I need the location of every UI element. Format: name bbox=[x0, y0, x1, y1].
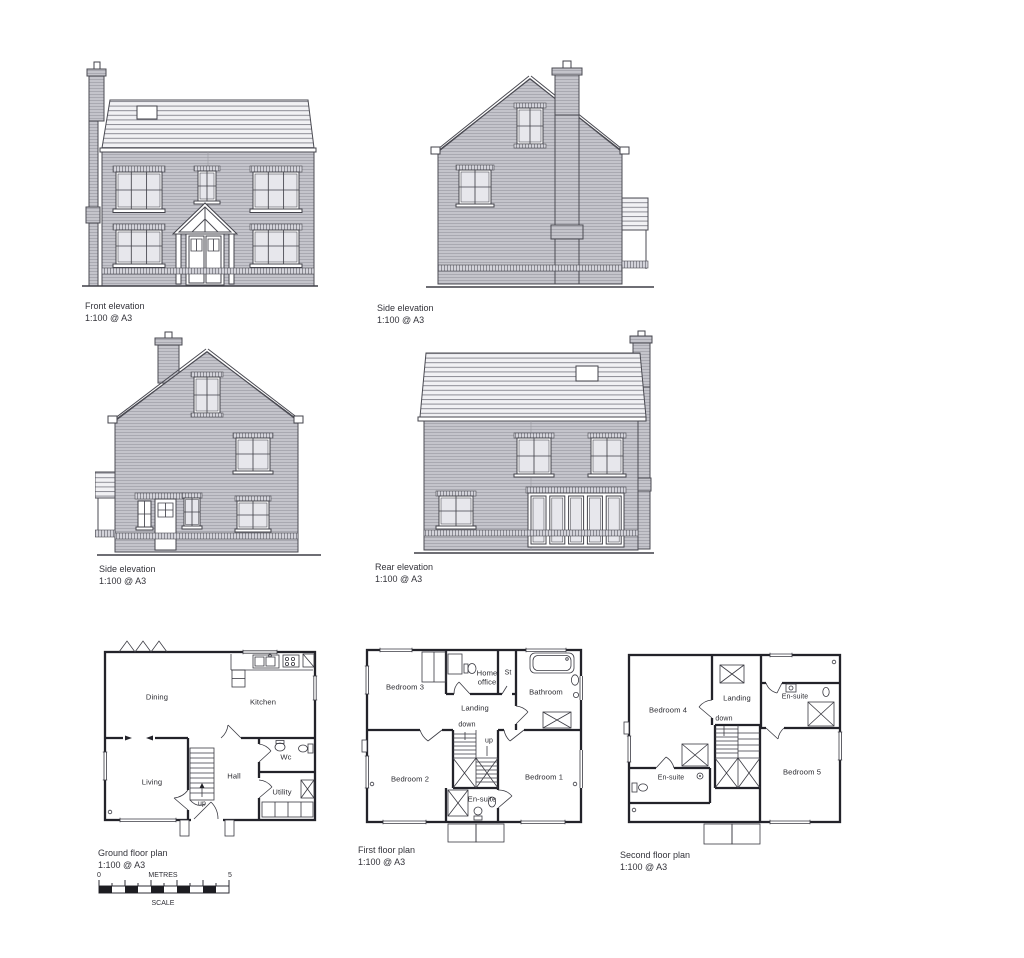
window bbox=[514, 433, 554, 477]
toilet bbox=[639, 784, 648, 791]
rooflight bbox=[576, 366, 598, 381]
basin bbox=[571, 675, 578, 685]
bifold-doors bbox=[526, 487, 626, 547]
ensuite-right-fittings bbox=[786, 684, 834, 726]
room-label-kitchen: Kitchen bbox=[250, 698, 276, 707]
side-elevation-mid-caption: Side elevation 1:100 @ A3 bbox=[99, 563, 156, 587]
plinth-course bbox=[438, 265, 622, 271]
scale-five: 5 bbox=[228, 872, 232, 879]
plinth-course bbox=[102, 268, 314, 274]
wall-projection bbox=[624, 722, 629, 734]
room-label-wc: Wc bbox=[280, 753, 291, 762]
room-label-living: Living bbox=[142, 778, 162, 787]
room-label-landing: Landing bbox=[723, 694, 751, 703]
porch-post bbox=[180, 820, 189, 836]
scale-bar-svg: 0 METRES 5 SCALE bbox=[97, 868, 237, 914]
toilet bbox=[474, 807, 482, 815]
window bbox=[233, 433, 273, 474]
utility-units bbox=[262, 780, 314, 817]
room-label-hall: Hall bbox=[227, 772, 240, 781]
basin bbox=[275, 743, 285, 751]
corner-detail bbox=[370, 782, 374, 786]
ground-floor-plan-drawing: Dining Kitchen Living Hall Wc Utility up bbox=[95, 640, 325, 845]
window bbox=[436, 491, 476, 529]
caption-title: Side elevation bbox=[377, 302, 434, 314]
corner-detail bbox=[573, 782, 577, 786]
corner-detail bbox=[832, 660, 836, 664]
room-label-bathroom: Bathroom bbox=[529, 688, 563, 697]
chimney-icon bbox=[551, 61, 583, 284]
roof bbox=[418, 353, 646, 421]
stair-label-down: down bbox=[715, 716, 732, 723]
window bbox=[182, 493, 202, 529]
hob bbox=[283, 655, 299, 667]
room-label-utility: Utility bbox=[272, 788, 291, 797]
side-elevation-mid-drawing bbox=[95, 330, 325, 565]
stair-label-up: up bbox=[198, 801, 206, 808]
window bbox=[113, 224, 165, 268]
porch-side bbox=[95, 472, 115, 537]
front-elevation-svg bbox=[80, 55, 322, 295]
first-floor-plan-drawing: Bedroom 3 Home office St Bathroom Landin… bbox=[358, 640, 595, 848]
wc-fittings bbox=[275, 741, 313, 754]
front-elevation-drawing bbox=[80, 55, 322, 295]
scale-caption: SCALE bbox=[152, 900, 175, 907]
side-elevation-top-caption: Side elevation 1:100 @ A3 bbox=[377, 302, 434, 326]
window bbox=[235, 496, 271, 532]
scale-bar-graphic bbox=[99, 880, 229, 893]
caption-scale: 1:100 @ A3 bbox=[620, 861, 690, 873]
room-label-store: St bbox=[505, 670, 512, 677]
plinth-course bbox=[115, 533, 298, 539]
drawing-sheet: Front elevation 1:100 @ A3 bbox=[0, 0, 1024, 958]
first-floor-caption: First floor plan 1:100 @ A3 bbox=[358, 844, 415, 868]
porch-post bbox=[225, 820, 234, 836]
internal-walls bbox=[629, 655, 840, 822]
porch-below bbox=[476, 824, 504, 842]
window bbox=[191, 372, 223, 417]
second-floor-plan-svg bbox=[620, 640, 857, 852]
caption-title: Ground floor plan bbox=[98, 847, 168, 859]
room-label-landing: Landing bbox=[461, 704, 489, 713]
void-box bbox=[720, 665, 744, 683]
caption-scale: 1:100 @ A3 bbox=[375, 573, 433, 585]
room-label-bedroom5: Bedroom 5 bbox=[783, 768, 821, 777]
corner-detail bbox=[108, 810, 112, 814]
roof bbox=[100, 100, 316, 152]
caption-scale: 1:100 @ A3 bbox=[377, 314, 434, 326]
scale-zero: 0 bbox=[97, 872, 101, 879]
wall-projection bbox=[362, 740, 367, 752]
window bbox=[113, 166, 165, 213]
window bbox=[250, 224, 302, 268]
second-floor-caption: Second floor plan 1:100 @ A3 bbox=[620, 849, 690, 873]
staircase bbox=[715, 725, 760, 788]
room-label-bedroom2: Bedroom 2 bbox=[391, 775, 429, 784]
window bbox=[194, 166, 220, 204]
window bbox=[456, 165, 494, 207]
room-label-bedroom3: Bedroom 3 bbox=[386, 683, 424, 692]
room-label-ensuite: En-suite bbox=[468, 795, 497, 804]
rooflight bbox=[137, 106, 157, 119]
side-elevation-top-svg bbox=[420, 55, 660, 297]
caption-title: Front elevation bbox=[85, 300, 145, 312]
caption-title: Second floor plan bbox=[620, 849, 690, 861]
side-elevation-mid-svg bbox=[95, 330, 325, 565]
room-label-ensuite-b: En-suite bbox=[658, 775, 684, 782]
rear-elevation-caption: Rear elevation 1:100 @ A3 bbox=[375, 561, 433, 585]
room-label-dining: Dining bbox=[146, 693, 168, 702]
window bbox=[588, 433, 626, 477]
room-label-bedroom4: Bedroom 4 bbox=[649, 706, 687, 715]
staircase bbox=[190, 748, 214, 805]
porch-below bbox=[704, 824, 732, 844]
porch-below bbox=[732, 824, 760, 844]
external-walls bbox=[629, 655, 840, 822]
window-symbol bbox=[627, 653, 842, 824]
caption-title: First floor plan bbox=[358, 844, 415, 856]
room-label-ensuite-a: En-suite bbox=[782, 694, 808, 701]
plinth-course bbox=[424, 530, 638, 536]
rear-elevation-svg bbox=[410, 330, 660, 565]
front-elevation-caption: Front elevation 1:100 @ A3 bbox=[85, 300, 145, 324]
second-floor-plan-drawing: Bedroom 4 Landing down En-suite En-suite… bbox=[620, 640, 857, 852]
stair-label-up: up bbox=[485, 738, 493, 745]
scale-units: METRES bbox=[148, 872, 178, 879]
wardrobe bbox=[422, 652, 446, 682]
side-elevation-top-drawing bbox=[420, 55, 660, 297]
room-label-bedroom1: Bedroom 1 bbox=[525, 773, 563, 782]
scale-bar: 0 METRES 5 SCALE bbox=[97, 868, 237, 914]
caption-title: Side elevation bbox=[99, 563, 156, 575]
rear-elevation-drawing bbox=[410, 330, 660, 565]
toilet bbox=[299, 745, 308, 752]
window bbox=[250, 166, 302, 213]
caption-title: Rear elevation bbox=[375, 561, 433, 573]
room-label-home-office: Home office bbox=[469, 669, 505, 686]
stair-label-down: down bbox=[458, 722, 475, 729]
corner-detail bbox=[632, 808, 636, 812]
ground-floor-plan-svg bbox=[95, 640, 325, 845]
caption-scale: 1:100 @ A3 bbox=[85, 312, 145, 324]
break-line bbox=[119, 641, 167, 652]
caption-scale: 1:100 @ A3 bbox=[358, 856, 415, 868]
kitchen-units bbox=[231, 654, 314, 687]
porch-below bbox=[448, 824, 476, 842]
porch-side bbox=[622, 198, 648, 269]
window bbox=[514, 103, 546, 148]
basin bbox=[823, 687, 829, 696]
caption-scale: 1:100 @ A3 bbox=[99, 575, 156, 587]
